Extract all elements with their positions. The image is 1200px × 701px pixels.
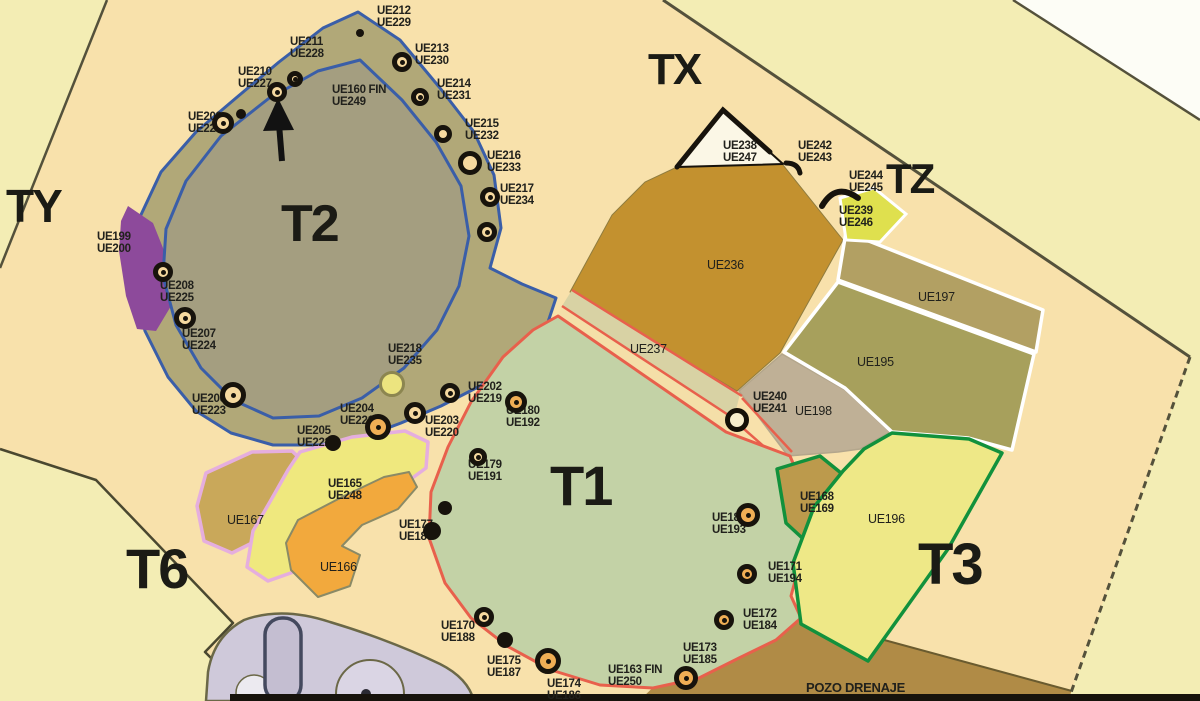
posthole-marker [458,151,482,175]
posthole-marker [411,88,429,106]
ue-label: UE198 [795,405,832,418]
posthole-marker [267,82,287,102]
ue-label: UE170UE188 [441,621,475,644]
posthole-marker [474,607,494,627]
posthole-marker [212,112,234,134]
ue-label: UE213UE230 [415,44,449,67]
posthole-marker [714,610,734,630]
ue-label: UE171UE194 [768,562,802,585]
posthole-marker [440,383,460,403]
ue-label: UE163 FINUE250 [608,665,662,688]
zone-label-T6: T6 [126,543,187,595]
labels-layer: TYT2TXTZT1T3T6UE212UE229UE211UE228UE210U… [0,0,1200,701]
ue-label: UE236 [707,259,744,272]
posthole-marker [725,408,749,432]
posthole-marker [674,666,698,690]
posthole-marker [736,503,760,527]
zone-label-TZ: TZ [886,160,933,199]
posthole-marker [392,52,412,72]
posthole-marker [535,648,561,674]
ue-label: UE199UE200 [97,232,131,255]
ue-label: UE202UE219 [468,382,502,405]
ue-label: UE172UE184 [743,609,777,632]
zone-label-T1: T1 [550,460,611,512]
ue-label: UE208UE225 [160,281,194,304]
ue-label: UE216UE233 [487,151,521,174]
posthole-marker [423,522,441,540]
ue-label: UE240UE241 [753,392,787,415]
ue-label: UE238UE247 [723,141,757,164]
ue-label: UE210UE227 [238,67,272,90]
ue-label: UE173UE185 [683,643,717,666]
ue-label: UE197 [918,291,955,304]
ue-label: UE196 [868,513,905,526]
ue-label: UE211UE228 [290,37,324,60]
ue-label: UE237 [630,343,667,356]
ue-label: UE239UE246 [839,206,873,229]
ue-label: UE175UE187 [487,656,521,679]
posthole-marker [480,187,500,207]
ue-label: UE195 [857,356,894,369]
posthole-marker [434,125,452,143]
ue-label: UE160 FINUE249 [332,85,386,108]
posthole-marker [505,391,527,413]
ue-label: UE174UE186 [547,679,581,701]
zone-label-T2: T2 [281,201,338,249]
posthole-marker [365,414,391,440]
posthole-marker [220,382,246,408]
posthole-marker [287,71,303,87]
posthole-marker [356,29,364,37]
zone-label-TY: TY [6,185,61,227]
ue-label: UE207UE224 [182,329,216,352]
ue-label: UE166 [320,561,357,574]
posthole-marker [469,448,487,466]
posthole-marker [379,371,405,397]
ue-label: POZO DRENAJE [806,681,905,694]
ue-label: UE218UE235 [388,344,422,367]
posthole-marker [153,262,173,282]
posthole-marker [737,564,757,584]
ue-label: UE242UE243 [798,141,832,164]
posthole-marker [497,632,513,648]
zone-label-TX: TX [648,50,700,90]
ue-label: UE212UE229 [377,6,411,29]
zone-label-T3: T3 [918,538,982,591]
excavation-plan: TYT2TXTZT1T3T6UE212UE229UE211UE228UE210U… [0,0,1200,701]
posthole-marker [325,435,341,451]
posthole-marker [236,109,246,119]
ue-label: UE203UE220 [425,416,459,439]
ue-label: UE167 [227,514,264,527]
posthole-marker [438,501,452,515]
posthole-marker [174,307,196,329]
ue-label: UE214UE231 [437,79,471,102]
ue-label: UE217UE234 [500,184,534,207]
ue-label: UE215UE232 [465,119,499,142]
posthole-marker [404,402,426,424]
ue-label: UE165UE248 [328,479,362,502]
ue-label: UE244UE245 [849,171,883,194]
ue-label: UE168UE169 [800,492,834,515]
posthole-marker [477,222,497,242]
